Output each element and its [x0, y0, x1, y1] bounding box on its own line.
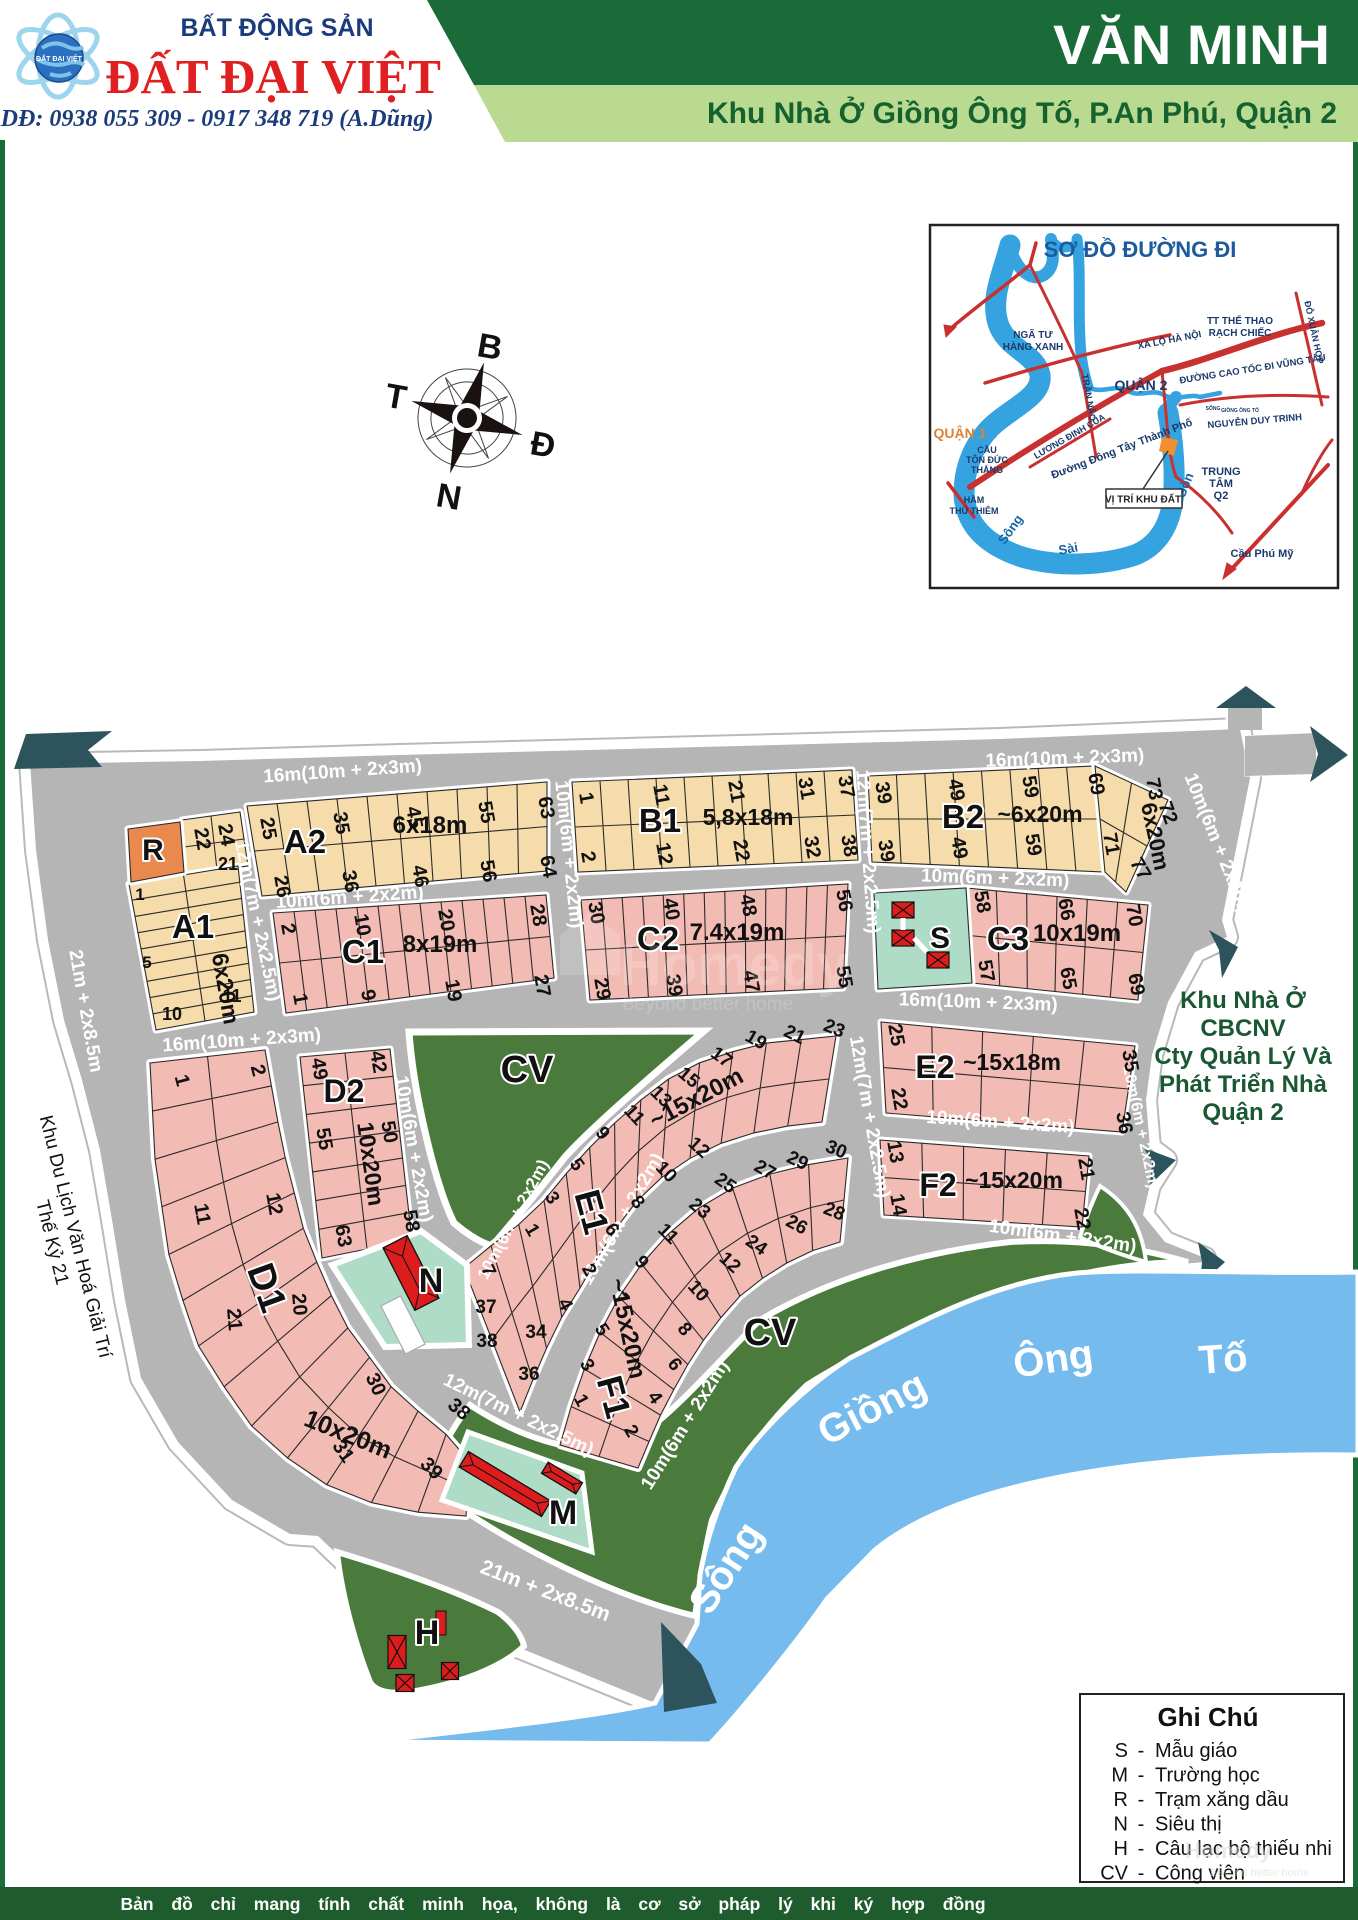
svg-text:-: -: [1138, 1814, 1145, 1836]
svg-text:45: 45: [401, 805, 427, 831]
svg-text:R: R: [142, 834, 164, 867]
svg-text:20: 20: [433, 907, 459, 933]
svg-text:58: 58: [398, 1208, 424, 1234]
svg-text:C1: C1: [342, 933, 384, 970]
svg-text:~6x20m: ~6x20m: [997, 801, 1082, 827]
svg-text:21: 21: [1073, 1156, 1099, 1182]
svg-text:QUẬN 2: QUẬN 2: [1115, 376, 1168, 393]
svg-text:26: 26: [269, 874, 295, 900]
svg-text:35: 35: [1117, 1048, 1143, 1074]
svg-text:25: 25: [255, 816, 281, 842]
svg-text:CBCNV: CBCNV: [1200, 1015, 1285, 1042]
svg-text:-: -: [1138, 1838, 1145, 1860]
svg-text:M: M: [549, 1494, 577, 1532]
svg-text:Siêu thị: Siêu thị: [1155, 1814, 1222, 1836]
svg-text:Trường học: Trường học: [1155, 1765, 1260, 1787]
svg-text:GIỒNG ÔNG TỐ: GIỒNG ÔNG TỐ: [1221, 406, 1259, 414]
svg-text:S: S: [930, 922, 950, 955]
svg-text:H: H: [415, 1614, 440, 1652]
svg-text:1: 1: [135, 885, 144, 904]
svg-text:48: 48: [735, 892, 761, 918]
svg-text:22: 22: [1069, 1206, 1095, 1232]
svg-text:Bản đồ chỉ mang tính chất minh: Bản đồ chỉ mang tính chất minh họa, khôn…: [120, 1894, 985, 1914]
svg-text:69: 69: [1123, 972, 1149, 998]
svg-text:HÀNG XANH: HÀNG XANH: [1003, 340, 1064, 353]
svg-text:71: 71: [1098, 831, 1124, 857]
svg-text:8x19m: 8x19m: [403, 931, 478, 958]
svg-text:VỊ TRÍ KHU ĐẤT: VỊ TRÍ KHU ĐẤT: [1105, 493, 1181, 506]
svg-text:21: 21: [723, 779, 749, 805]
svg-text:QUẬN 1: QUẬN 1: [934, 424, 987, 441]
svg-text:Homedy: Homedy: [620, 933, 849, 998]
svg-text:40: 40: [658, 896, 684, 922]
svg-text:THẮNG: THẮNG: [971, 465, 1003, 475]
svg-text:22: 22: [189, 826, 215, 852]
svg-text:70: 70: [1121, 903, 1147, 929]
svg-text:37: 37: [833, 774, 859, 800]
svg-text:A1: A1: [172, 908, 214, 945]
svg-text:Mẫu giáo: Mẫu giáo: [1155, 1739, 1237, 1762]
svg-text:49: 49: [946, 835, 972, 861]
svg-text:Khu Nhà Ở Giồng Ông Tố, P.An P: Khu Nhà Ở Giồng Ông Tố, P.An Phú, Quận 2: [707, 96, 1337, 130]
svg-text:H: H: [1114, 1838, 1128, 1860]
svg-text:VĂN MINH: VĂN MINH: [1053, 13, 1330, 76]
svg-text:N: N: [419, 1262, 444, 1300]
svg-text:10: 10: [349, 912, 375, 938]
svg-text:55: 55: [311, 1126, 337, 1152]
svg-text:F2: F2: [919, 1167, 956, 1203]
svg-text:27: 27: [529, 973, 555, 999]
svg-text:34: 34: [525, 1322, 547, 1343]
svg-text:39: 39: [873, 838, 899, 864]
svg-text:11: 11: [222, 986, 241, 1006]
svg-text:25: 25: [883, 1022, 909, 1048]
svg-text:36: 36: [337, 869, 363, 895]
svg-text:TT THỂ THAO: TT THỂ THAO: [1207, 314, 1273, 327]
svg-text:Beyond better home: Beyond better home: [1210, 1867, 1309, 1879]
svg-text:SÔNG: SÔNG: [1206, 404, 1221, 412]
svg-text:55: 55: [473, 799, 499, 825]
svg-text:ĐẤT ĐẠI VIỆT: ĐẤT ĐẠI VIỆT: [105, 49, 441, 104]
svg-text:Khu Nhà Ở: Khu Nhà Ở: [1180, 985, 1306, 1014]
svg-text:Ghi Chú: Ghi Chú: [1157, 1702, 1258, 1732]
svg-text:~15x18m: ~15x18m: [963, 1049, 1061, 1075]
svg-text:CV: CV: [501, 1049, 554, 1091]
svg-text:46: 46: [407, 863, 433, 889]
svg-text:CV: CV: [1100, 1863, 1128, 1885]
svg-text:Cầu Phú Mỹ: Cầu Phú Mỹ: [1231, 548, 1295, 560]
svg-text:21: 21: [218, 854, 238, 874]
svg-text:69: 69: [1083, 771, 1109, 797]
svg-text:57: 57: [973, 958, 999, 984]
svg-text:37: 37: [475, 1297, 496, 1318]
svg-text:CV: CV: [744, 1312, 797, 1354]
svg-text:-: -: [1138, 1765, 1145, 1787]
svg-text:Trạm xăng dầu: Trạm xăng dầu: [1155, 1789, 1289, 1811]
svg-text:38: 38: [836, 833, 862, 859]
svg-text:36: 36: [518, 1364, 539, 1385]
svg-text:C3: C3: [987, 920, 1029, 957]
svg-text:11: 11: [189, 1202, 214, 1227]
svg-text:TÂM: TÂM: [1209, 477, 1233, 490]
svg-text:M: M: [1111, 1765, 1128, 1787]
svg-text:39: 39: [870, 780, 896, 806]
svg-text:BẤT ĐỘNG SẢN: BẤT ĐỘNG SẢN: [180, 12, 373, 42]
svg-text:58: 58: [969, 889, 995, 915]
svg-text:19: 19: [440, 978, 466, 1004]
svg-text:DĐ: 0938 055 309 - 0917 348 71: DĐ: 0938 055 309 - 0917 348 719 (A.Dũng): [0, 106, 433, 132]
svg-text:50: 50: [376, 1119, 402, 1145]
svg-text:49: 49: [306, 1056, 332, 1082]
svg-text:THỦ THIÊM: THỦ THIÊM: [950, 505, 999, 516]
svg-text:28: 28: [525, 902, 551, 928]
svg-text:63: 63: [330, 1223, 356, 1249]
svg-text:56: 56: [831, 888, 857, 914]
svg-text:E2: E2: [915, 1049, 954, 1085]
svg-text:66: 66: [1053, 897, 1079, 923]
svg-text:36: 36: [1111, 1110, 1137, 1136]
svg-text:RẠCH CHIẾC: RẠCH CHIẾC: [1209, 326, 1272, 339]
svg-text:38: 38: [476, 1331, 497, 1352]
svg-text:21: 21: [222, 1307, 246, 1331]
svg-text:Homedy: Homedy: [1185, 1838, 1273, 1863]
svg-text:B1: B1: [639, 802, 681, 839]
svg-text:12: 12: [651, 841, 677, 867]
svg-text:59: 59: [1017, 774, 1043, 800]
svg-text:N: N: [1114, 1814, 1128, 1836]
svg-text:29: 29: [589, 976, 615, 1002]
svg-text:S: S: [1115, 1740, 1128, 1762]
svg-text:65: 65: [1055, 965, 1081, 991]
svg-text:35: 35: [328, 810, 354, 836]
svg-text:42: 42: [365, 1049, 391, 1075]
svg-text:Quận 2: Quận 2: [1202, 1099, 1283, 1126]
svg-text:D2: D2: [324, 1073, 365, 1109]
svg-text:5,8x18m: 5,8x18m: [703, 804, 794, 830]
svg-text:A2: A2: [284, 823, 326, 860]
svg-text:22: 22: [886, 1086, 912, 1112]
svg-text:TRUNG: TRUNG: [1201, 466, 1240, 478]
svg-text:22: 22: [728, 838, 754, 864]
svg-text:10: 10: [162, 1004, 182, 1024]
svg-text:32: 32: [799, 834, 825, 860]
svg-text:SƠ ĐỒ ĐƯỜNG ĐI: SƠ ĐỒ ĐƯỜNG ĐI: [1044, 237, 1237, 262]
svg-text:13: 13: [882, 1139, 908, 1165]
svg-text:R: R: [1114, 1789, 1128, 1811]
svg-text:Cty Quản Lý Và: Cty Quản Lý Và: [1154, 1043, 1332, 1070]
svg-text:49: 49: [943, 777, 969, 803]
svg-text:12: 12: [261, 1191, 287, 1217]
svg-text:56: 56: [475, 858, 501, 884]
svg-text:5: 5: [142, 953, 151, 972]
svg-text:31: 31: [793, 776, 819, 802]
svg-text:11: 11: [648, 782, 673, 807]
svg-text:Beyond better home: Beyond better home: [622, 994, 793, 1015]
svg-text:Phát Triển Nhà: Phát Triển Nhà: [1159, 1071, 1328, 1098]
svg-text:59: 59: [1020, 832, 1046, 858]
svg-text:TÔN ĐỨC: TÔN ĐỨC: [966, 454, 1008, 465]
svg-text:-: -: [1138, 1789, 1145, 1811]
svg-text:-: -: [1138, 1863, 1145, 1885]
svg-text:73: 73: [1141, 776, 1167, 802]
svg-text:Q2: Q2: [1214, 490, 1229, 502]
svg-text:B2: B2: [942, 798, 984, 835]
svg-text:NGÃ TƯ: NGÃ TƯ: [1013, 328, 1053, 341]
svg-text:~15x20m: ~15x20m: [965, 1167, 1063, 1193]
svg-text:Tố: Tố: [1197, 1335, 1249, 1382]
svg-text:-: -: [1138, 1740, 1145, 1762]
svg-text:HẦM: HẦM: [964, 495, 985, 505]
svg-text:20: 20: [287, 1292, 311, 1316]
svg-text:CẦU: CẦU: [977, 445, 997, 455]
svg-text:63: 63: [533, 795, 559, 821]
svg-text:10x19m: 10x19m: [1033, 920, 1121, 947]
